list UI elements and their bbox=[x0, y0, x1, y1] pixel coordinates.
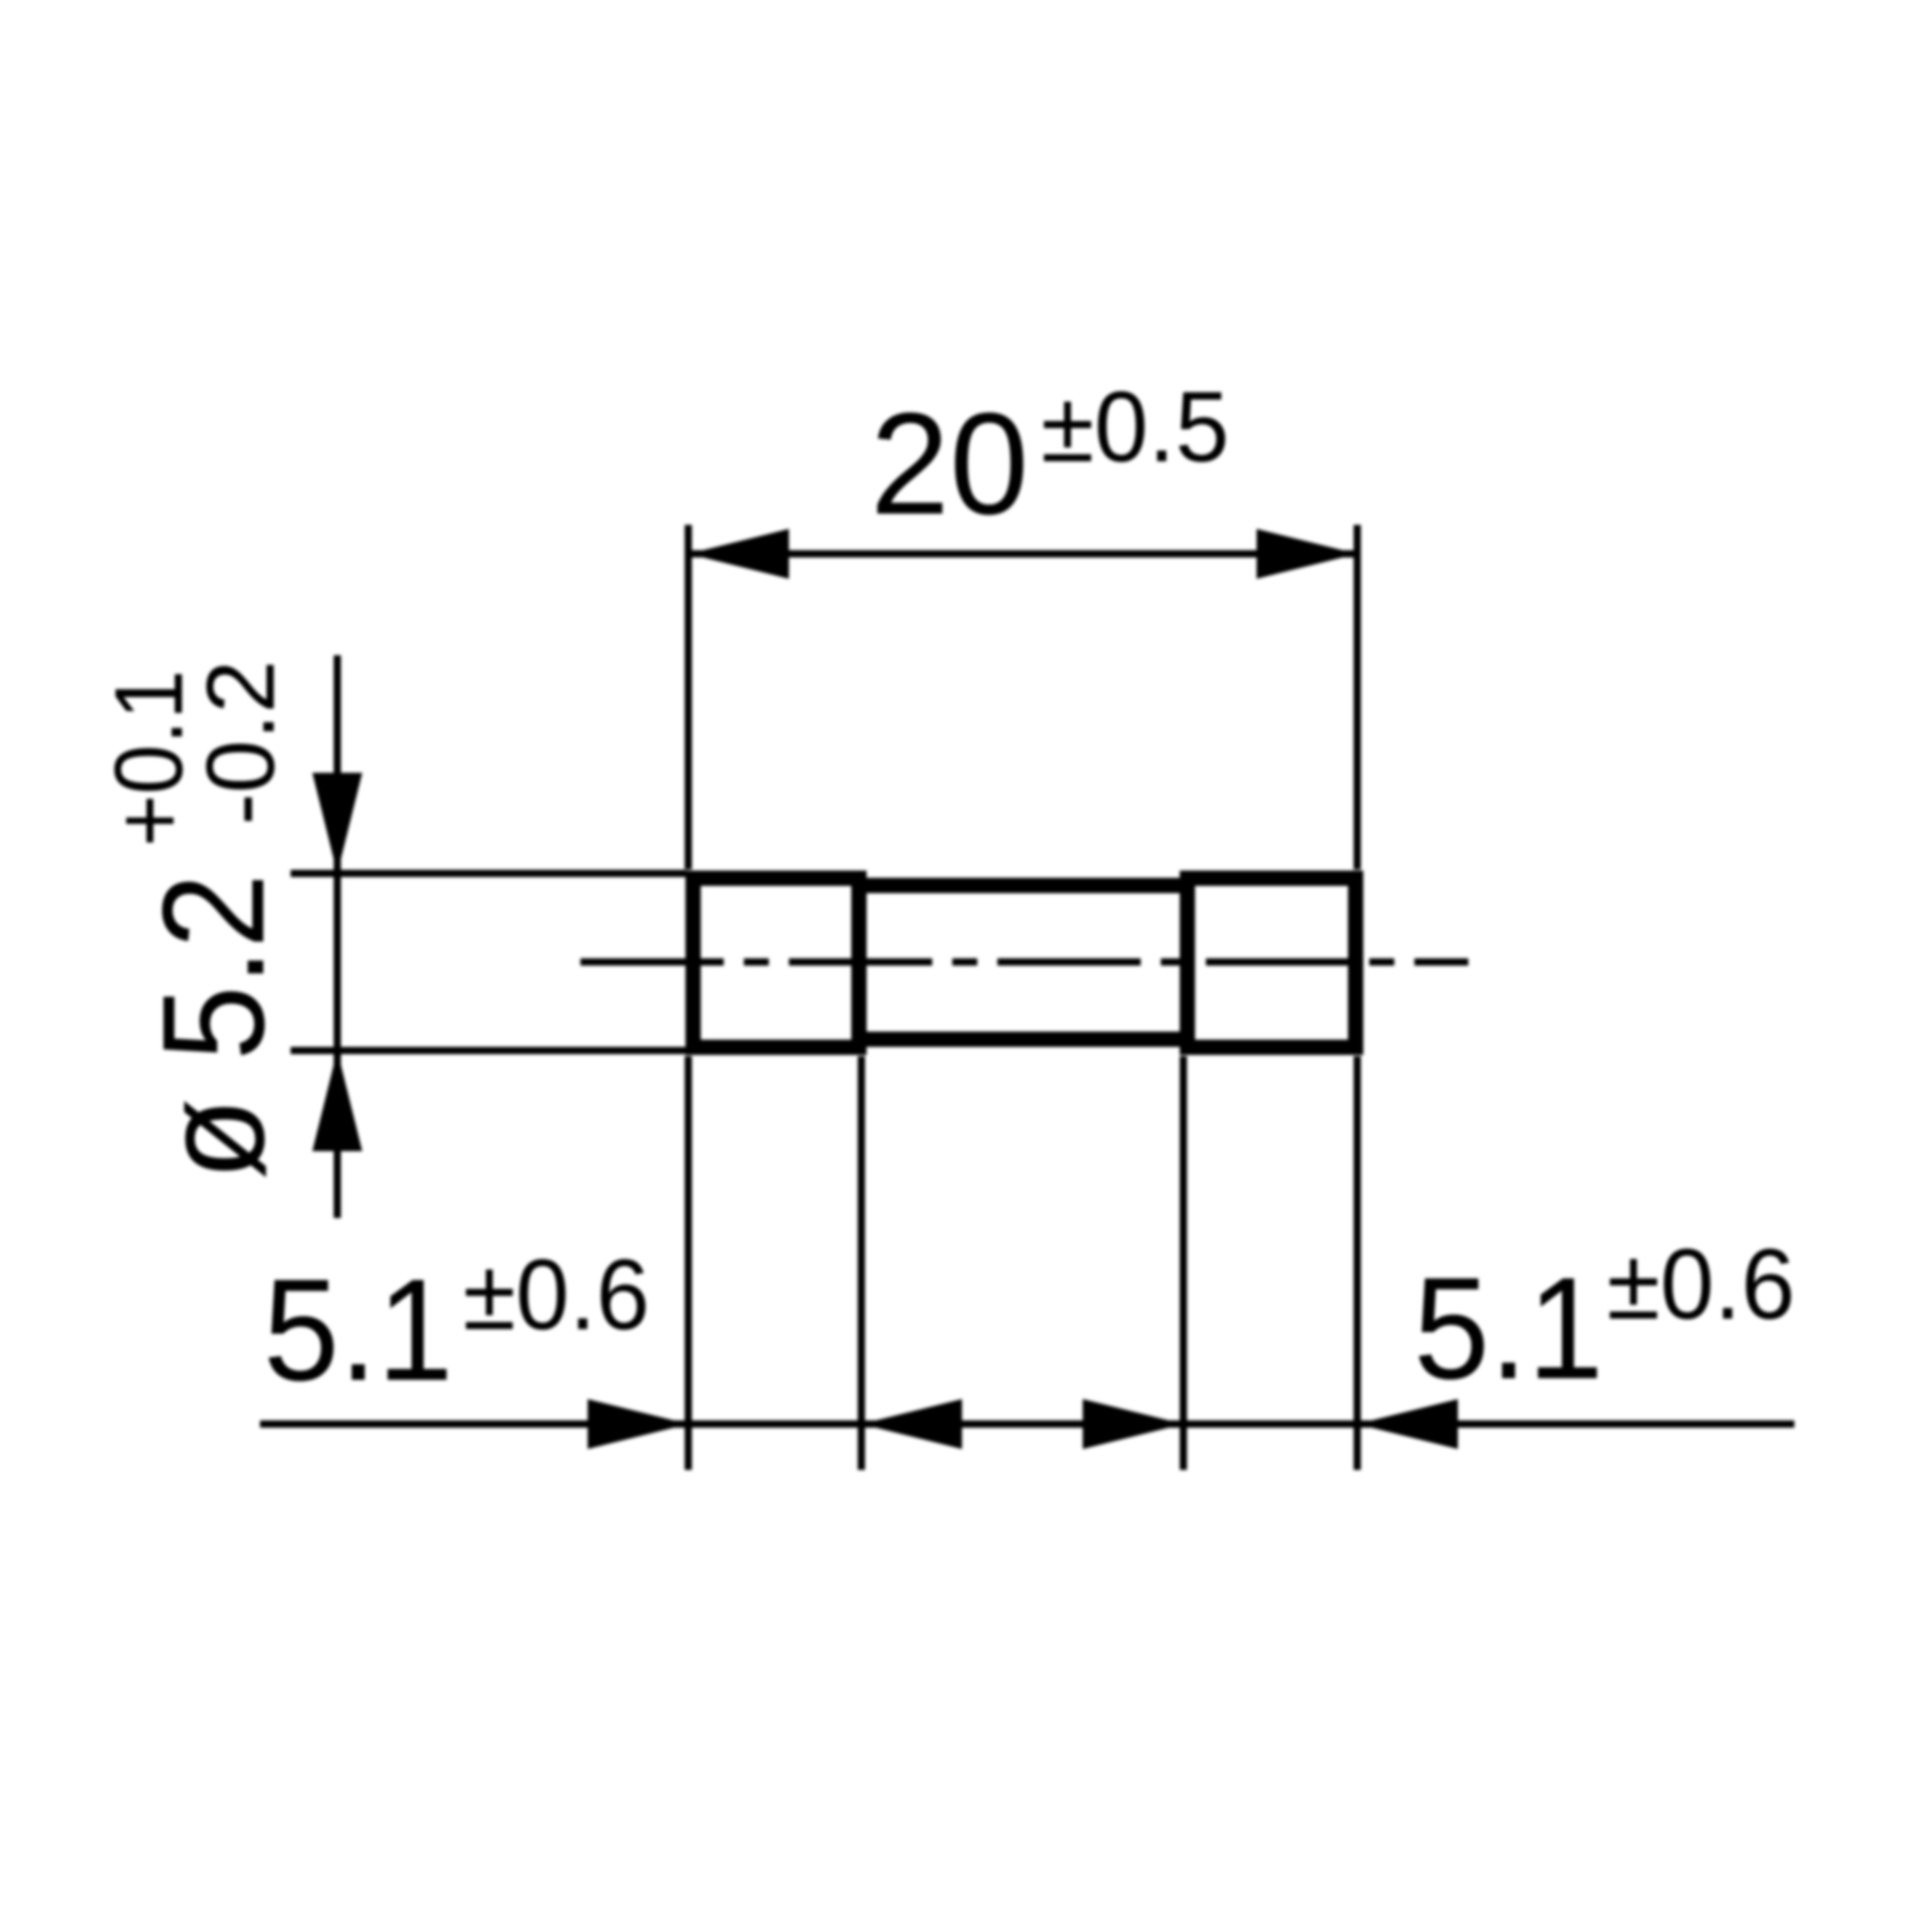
svg-text:ø 5.2: ø 5.2 bbox=[133, 873, 295, 1180]
svg-text:5.1: 5.1 bbox=[263, 1249, 453, 1411]
svg-text:-0.2: -0.2 bbox=[187, 660, 295, 825]
svg-text:20: 20 bbox=[870, 383, 1029, 545]
svg-text:±0.6: ±0.6 bbox=[463, 1240, 650, 1351]
svg-text:5.1: 5.1 bbox=[1414, 1248, 1604, 1410]
svg-text:±0.6: ±0.6 bbox=[1607, 1229, 1795, 1340]
svg-text:±0.5: ±0.5 bbox=[1041, 372, 1229, 483]
